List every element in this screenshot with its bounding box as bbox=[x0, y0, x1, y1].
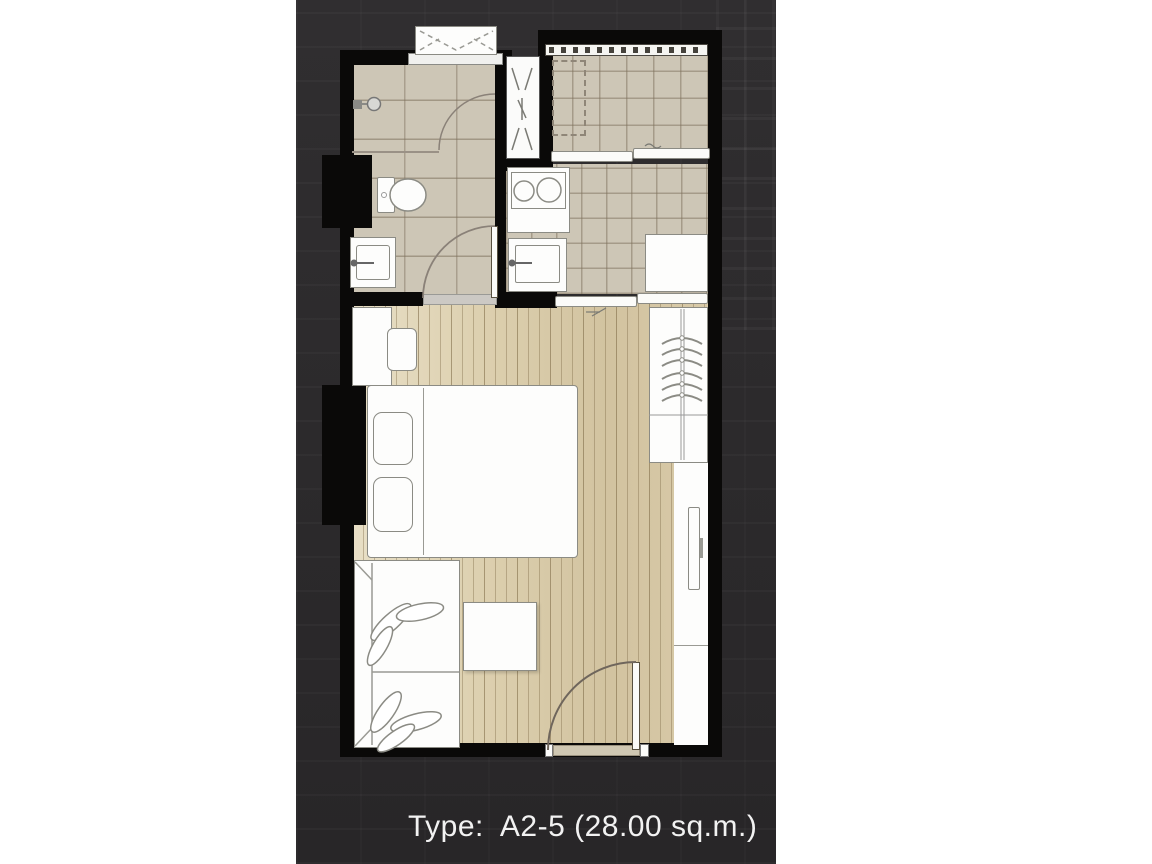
wall-bathroom-bottom bbox=[340, 292, 423, 306]
tv-bracket bbox=[700, 538, 703, 558]
balcony-sliding-door-panel-2 bbox=[633, 148, 710, 159]
coffee-table bbox=[463, 602, 537, 671]
balcony-sliding-door-panel-1 bbox=[551, 151, 633, 162]
wall-kitchen-bottom-left bbox=[495, 292, 557, 308]
bathroom-door-threshold bbox=[423, 294, 497, 305]
wardrobe bbox=[649, 307, 708, 463]
entry-hall-strip bbox=[674, 463, 708, 745]
kitchen-sink-basin bbox=[515, 245, 560, 283]
wall-top-balcony bbox=[541, 30, 722, 44]
entrance-door-leaf bbox=[632, 662, 640, 750]
entrance-jamb-right bbox=[640, 744, 649, 757]
kitchen-sliding-door-panel-1 bbox=[555, 296, 637, 307]
kitchen-sliding-door-panel-2 bbox=[637, 293, 708, 304]
bathroom-door-leaf bbox=[491, 226, 498, 298]
bathroom-basin bbox=[356, 245, 390, 280]
washer-space-dashed bbox=[552, 60, 586, 136]
bed-fold-line bbox=[423, 388, 424, 555]
entry-hall-divider bbox=[674, 645, 708, 646]
tv bbox=[688, 507, 700, 590]
toilet-tank bbox=[377, 177, 395, 213]
ac-condenser-unit bbox=[415, 26, 497, 55]
floor-plan-panel: Type: A2-5 (28.00 sq.m.) bbox=[296, 0, 776, 864]
pillow-2 bbox=[373, 477, 413, 532]
entrance-jamb-left bbox=[545, 744, 553, 757]
entrance-threshold bbox=[553, 745, 640, 756]
railing-ticks bbox=[549, 47, 704, 53]
wall-column-lower bbox=[322, 385, 366, 525]
pillow-1 bbox=[373, 412, 413, 465]
stool bbox=[387, 328, 417, 371]
wall-column-upper bbox=[322, 155, 372, 228]
desk bbox=[352, 307, 392, 386]
pipe-shaft bbox=[506, 56, 540, 159]
stove-panel bbox=[511, 172, 566, 209]
page: { "caption": { "label": "Type: A2-5 (28.… bbox=[0, 0, 1152, 864]
sofa-with-plant bbox=[354, 560, 460, 748]
refrigerator bbox=[645, 234, 708, 292]
wall-right bbox=[708, 30, 722, 757]
double-bed bbox=[367, 385, 578, 558]
plan-caption: Type: A2-5 (28.00 sq.m.) bbox=[408, 810, 757, 844]
brick-texture bbox=[716, 0, 776, 330]
balcony-railing bbox=[545, 44, 708, 56]
